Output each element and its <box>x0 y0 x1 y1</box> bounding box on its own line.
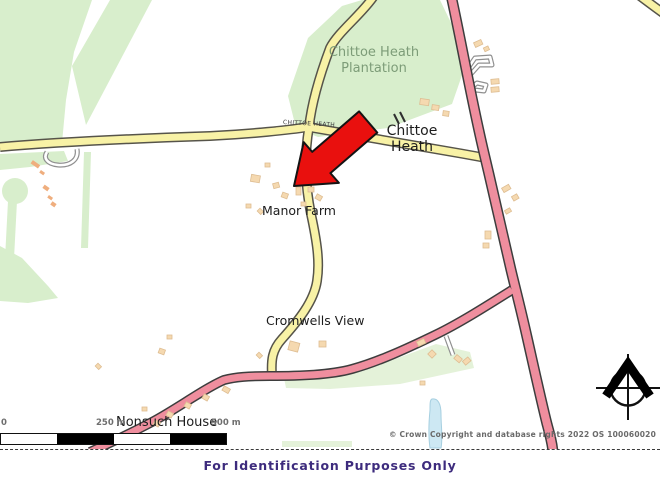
copyright-notice: © Crown Copyright and database rights 20… <box>389 430 656 439</box>
identification-disclaimer: For Identification Purposes Only <box>203 458 456 473</box>
scale-bar-segment <box>170 434 226 444</box>
scale-bar <box>0 433 227 445</box>
cromwells-view-label: Cromwells View <box>266 313 364 328</box>
scale-label-zero: 0 <box>1 418 7 428</box>
scale-label-500: 500 m <box>211 418 241 428</box>
scale-label-250: 250 m <box>96 418 126 428</box>
plantation-label: Chittoe Heath Plantation <box>329 45 419 77</box>
road-name-label: CHITTOE HEATH <box>283 119 335 129</box>
settlement-label-line2: Heath <box>387 139 438 155</box>
plantation-label-line1: Chittoe Heath <box>329 45 419 61</box>
map-viewport: CHITTOE HEATH Chittoe Heath Plantation C… <box>0 0 660 450</box>
settlement-label-line1: Chittoe <box>387 123 438 139</box>
plantation-label-line2: Plantation <box>329 61 419 77</box>
footer-bar: For Identification Purposes Only <box>0 449 660 481</box>
manor-farm-label: Manor Farm <box>262 203 336 218</box>
pond <box>429 399 442 448</box>
pink-roads <box>90 0 553 450</box>
buildings-layer <box>31 39 520 427</box>
scale-bar-segment <box>57 434 114 444</box>
nonsuch-house-label: Nonsuch House <box>116 415 217 430</box>
settlement-label: Chittoe Heath <box>387 123 438 155</box>
